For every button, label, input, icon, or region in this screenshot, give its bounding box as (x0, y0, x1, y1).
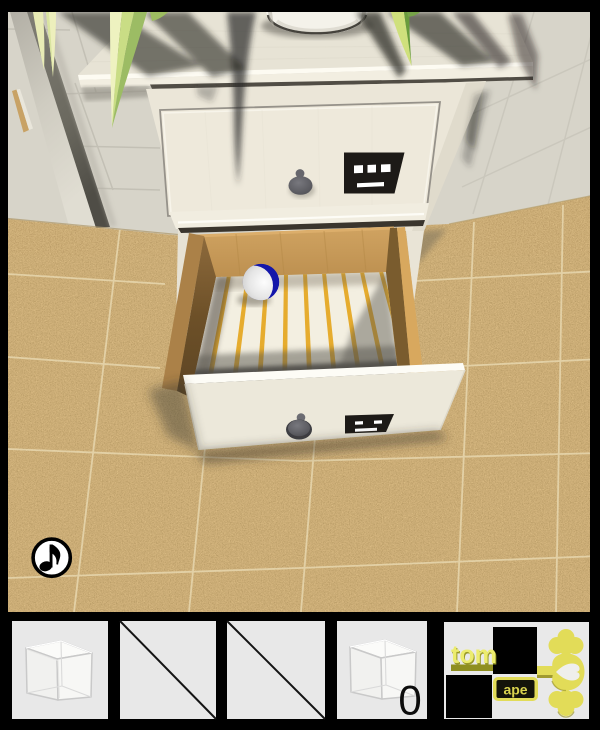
svg-text:0: 0 (398, 677, 421, 724)
svg-text:tom: tom (451, 641, 497, 669)
svg-text:ape: ape (503, 682, 527, 698)
